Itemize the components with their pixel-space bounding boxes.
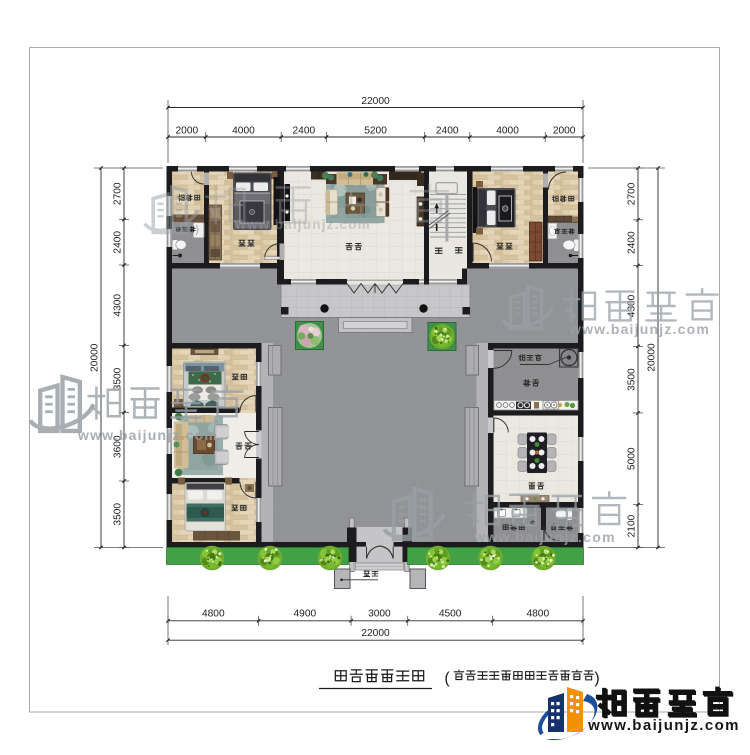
svg-text:2400: 2400 [293,126,316,137]
svg-text:www.baijunjz.com: www.baijunjz.com [77,427,218,443]
svg-text:3000: 3000 [368,609,391,620]
svg-text:22000: 22000 [361,96,390,107]
svg-text:4000: 4000 [496,126,519,137]
svg-text:5200: 5200 [364,126,387,137]
svg-text:2000: 2000 [553,126,576,137]
svg-text:20000: 20000 [90,343,101,372]
svg-text:www.baijunjz.com: www.baijunjz.com [234,217,371,232]
svg-text:4000: 4000 [232,126,255,137]
svg-text:22000: 22000 [361,628,390,639]
svg-text:2000: 2000 [176,126,199,137]
svg-text:4500: 4500 [439,609,462,620]
svg-text:4800: 4800 [526,609,549,620]
svg-text:4900: 4900 [294,609,317,620]
svg-text:20000: 20000 [647,343,658,372]
svg-text:): ) [594,670,599,687]
svg-text:5000: 5000 [627,447,638,470]
svg-text:2400: 2400 [436,126,459,137]
svg-text:4800: 4800 [202,609,225,620]
svg-text:2700: 2700 [113,182,124,205]
svg-text:2100: 2100 [627,514,638,537]
svg-text:(: ( [444,670,450,687]
svg-text:www.baijunjz.com: www.baijunjz.com [569,321,710,337]
svg-text:3500: 3500 [113,367,124,390]
svg-text:4300: 4300 [627,294,638,317]
svg-text:www.baijunjz.com: www.baijunjz.com [587,717,740,734]
svg-text:4300: 4300 [113,294,124,317]
svg-text:2400: 2400 [113,231,124,254]
svg-text:2700: 2700 [627,182,638,205]
svg-text:3500: 3500 [113,503,124,526]
svg-text:3500: 3500 [627,368,638,391]
svg-text:2400: 2400 [627,231,638,254]
svg-text:www.baijunjz.com: www.baijunjz.com [473,529,616,545]
